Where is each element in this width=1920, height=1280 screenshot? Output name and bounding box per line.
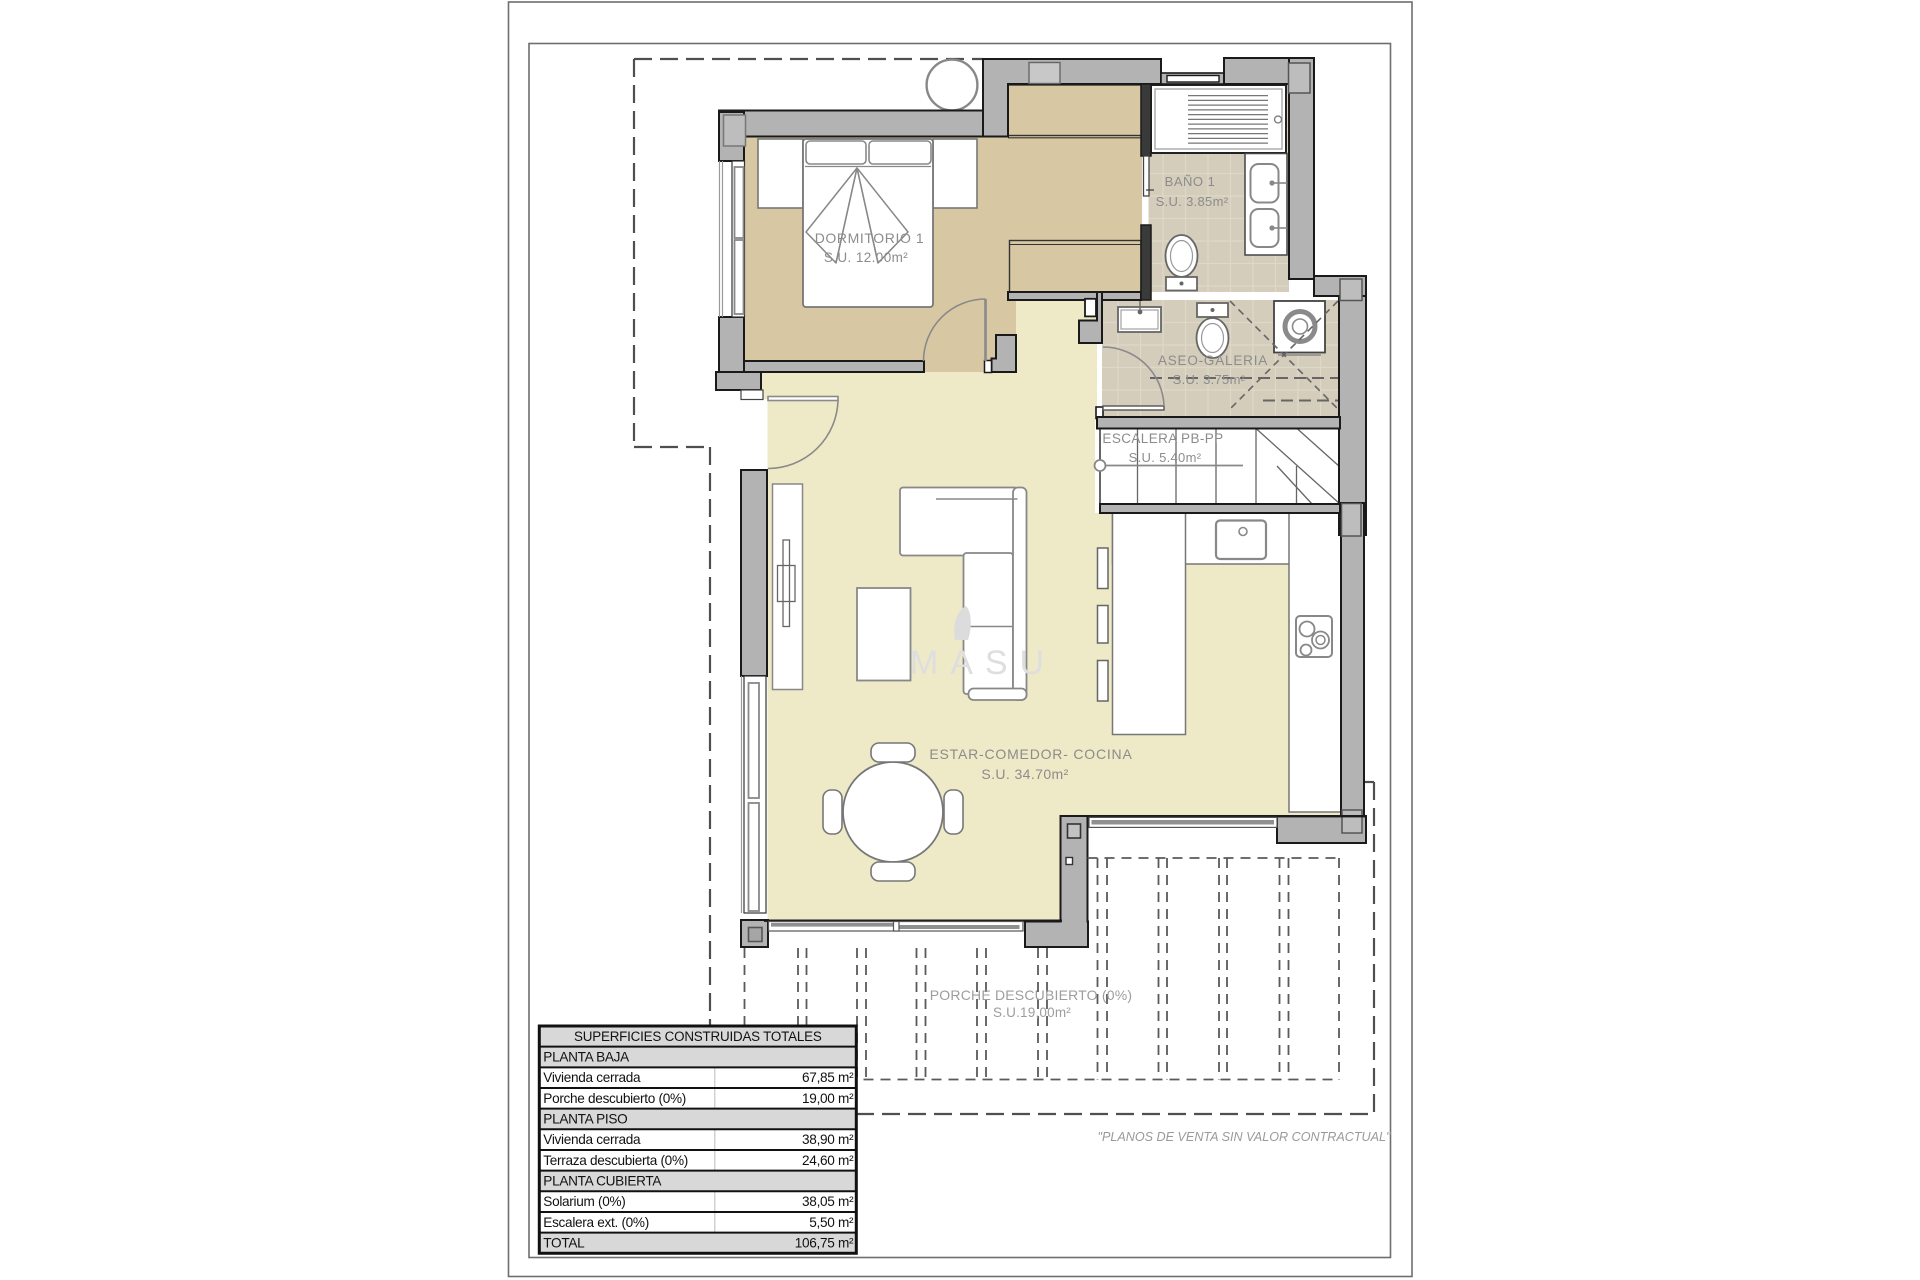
svg-text:ESCALERA PB-PP: ESCALERA PB-PP — [1102, 431, 1223, 446]
svg-text:Porche descubierto (0%): Porche descubierto (0%) — [543, 1091, 686, 1106]
svg-text:Vivienda cerrada: Vivienda cerrada — [543, 1132, 641, 1147]
svg-text:PORCHE DESCUBIERTO (0%): PORCHE DESCUBIERTO (0%) — [930, 987, 1132, 1003]
svg-text:106,75 m²: 106,75 m² — [795, 1235, 854, 1250]
svg-text:PLANTA BAJA: PLANTA BAJA — [543, 1050, 630, 1065]
svg-text:S.U.19,00m²: S.U.19,00m² — [993, 1005, 1071, 1020]
svg-text:ASEO-GALERIA: ASEO-GALERIA — [1158, 353, 1268, 368]
svg-text:DORMITORIO 1: DORMITORIO 1 — [815, 230, 925, 246]
svg-text:S.U. 12.00m²: S.U. 12.00m² — [824, 250, 908, 265]
svg-text:Terraza descubierta (0%): Terraza descubierta (0%) — [543, 1153, 688, 1168]
svg-text:ESTAR-COMEDOR- COCINA: ESTAR-COMEDOR- COCINA — [929, 746, 1132, 762]
svg-text:S.U. 3.75m²: S.U. 3.75m² — [1173, 372, 1246, 387]
svg-text:TOTAL: TOTAL — [543, 1235, 585, 1250]
svg-text:24,60 m²: 24,60 m² — [802, 1153, 854, 1168]
svg-text:19,00 m²: 19,00 m² — [802, 1091, 854, 1106]
svg-text:S.U. 5.40m²: S.U. 5.40m² — [1129, 450, 1202, 465]
svg-text:MASU: MASU — [910, 644, 1056, 682]
svg-text:38,90 m²: 38,90 m² — [802, 1132, 854, 1147]
svg-text:PLANTA PISO: PLANTA PISO — [543, 1112, 627, 1127]
svg-text:Escalera ext. (0%): Escalera ext. (0%) — [543, 1215, 649, 1230]
svg-text:BAÑO 1: BAÑO 1 — [1165, 174, 1216, 189]
svg-text:67,85 m²: 67,85 m² — [802, 1070, 854, 1085]
svg-text:SUPERFICIES CONSTRUIDAS TOTALE: SUPERFICIES CONSTRUIDAS TOTALES — [574, 1029, 822, 1044]
svg-text:38,05 m²: 38,05 m² — [802, 1194, 854, 1209]
svg-text:"PLANOS DE VENTA SIN VALOR CON: "PLANOS DE VENTA SIN VALOR CONTRACTUAL" — [1097, 1130, 1391, 1144]
svg-text:PLANTA CUBIERTA: PLANTA CUBIERTA — [543, 1173, 662, 1188]
svg-text:S.U. 34.70m²: S.U. 34.70m² — [981, 766, 1068, 782]
svg-text:Solarium (0%): Solarium (0%) — [543, 1194, 625, 1209]
svg-text:5,50 m²: 5,50 m² — [809, 1215, 854, 1230]
svg-text:Vivienda cerrada: Vivienda cerrada — [543, 1070, 641, 1085]
svg-text:S.U. 3.85m²: S.U. 3.85m² — [1156, 194, 1229, 209]
